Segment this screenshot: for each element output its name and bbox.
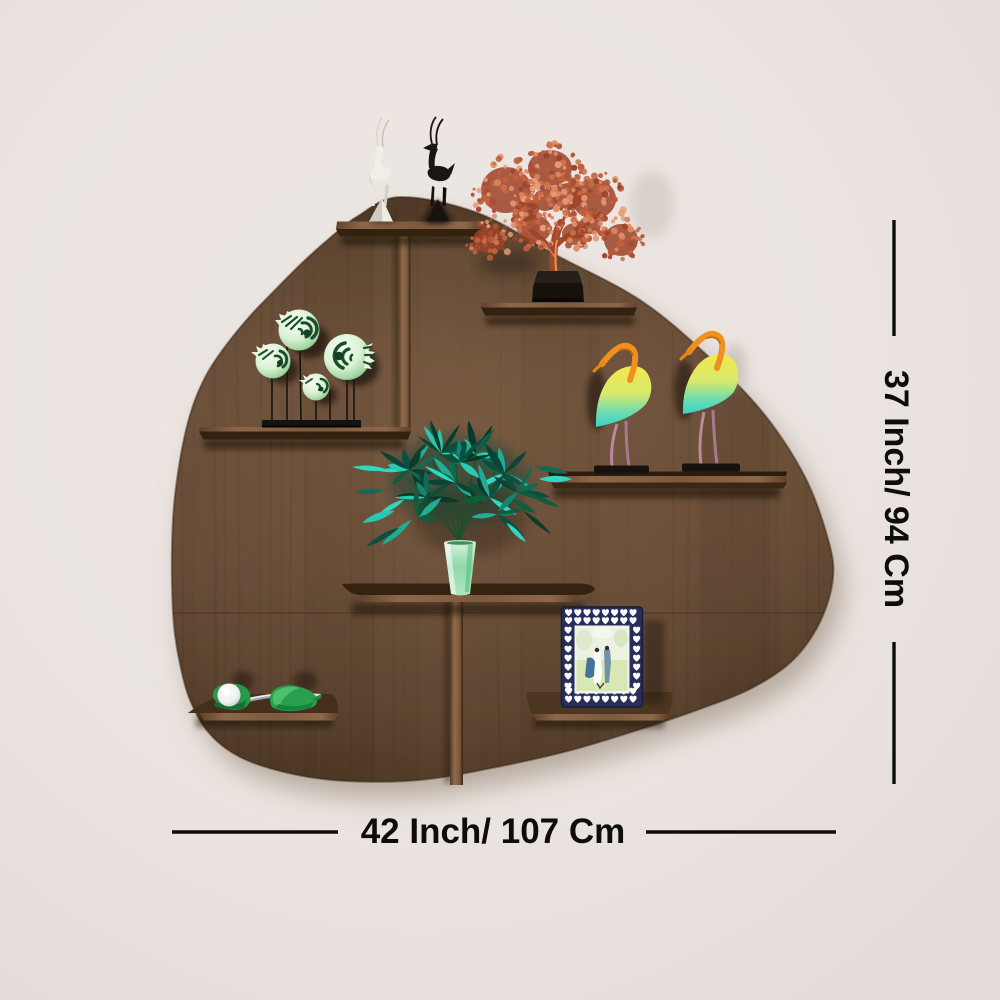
svg-text:37 Inch/ 94 Cm: 37 Inch/ 94 Cm [877, 370, 915, 608]
svg-text:42 Inch/ 107 Cm: 42 Inch/ 107 Cm [361, 812, 626, 851]
